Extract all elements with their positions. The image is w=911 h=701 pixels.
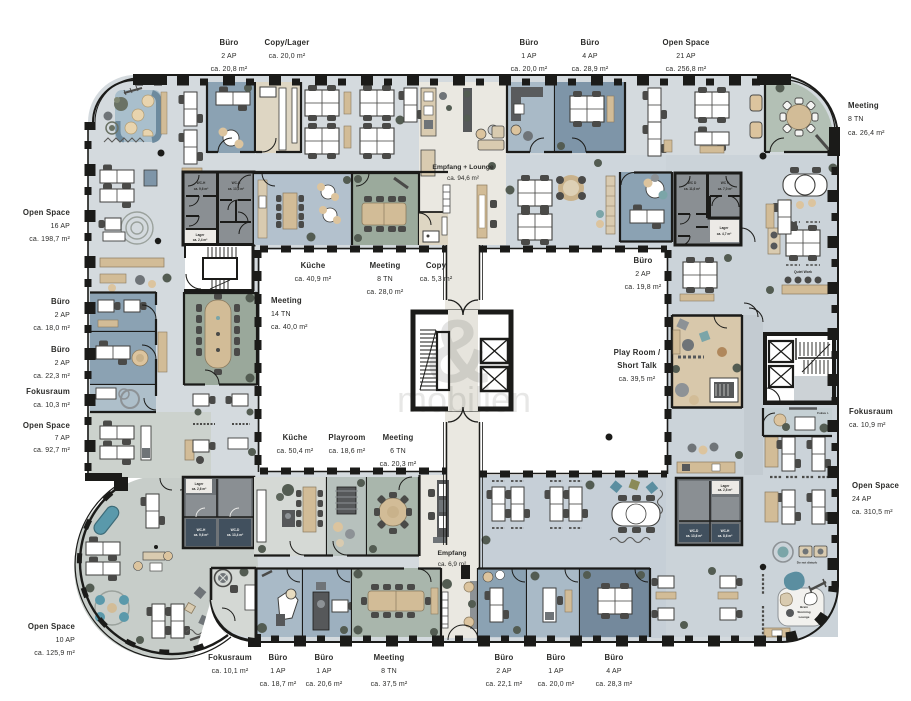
- svg-text:ca. 20,0 m²: ca. 20,0 m²: [269, 53, 306, 60]
- svg-text:24 AP: 24 AP: [852, 496, 872, 503]
- svg-text:Meeting: Meeting: [271, 296, 302, 305]
- svg-text:10 AP: 10 AP: [56, 637, 76, 644]
- svg-text:Empfang + Lounge: Empfang + Lounge: [432, 164, 494, 171]
- svg-text:6 TN: 6 TN: [390, 448, 406, 455]
- svg-text:Büro: Büro: [605, 653, 624, 662]
- svg-text:1 AP: 1 AP: [548, 668, 564, 675]
- svg-text:Short Talk: Short Talk: [617, 361, 657, 370]
- svg-text:ca. 198,7 m²: ca. 198,7 m²: [29, 236, 70, 243]
- svg-text:Lager: Lager: [720, 226, 729, 230]
- svg-text:Meeting: Meeting: [383, 433, 414, 442]
- svg-text:1 AP: 1 AP: [316, 668, 332, 675]
- svg-text:2 AP: 2 AP: [635, 271, 651, 278]
- svg-text:Open Space: Open Space: [28, 622, 76, 631]
- svg-text:Fokusraum: Fokusraum: [26, 387, 70, 396]
- svg-text:Büro: Büro: [495, 653, 514, 662]
- svg-text:Copy/Lager: Copy/Lager: [265, 38, 310, 47]
- svg-text:ca. 40,9 m²: ca. 40,9 m²: [295, 276, 332, 283]
- svg-text:ca. 9,6 m²: ca. 9,6 m²: [194, 533, 209, 537]
- svg-text:WC H: WC H: [721, 181, 730, 185]
- svg-text:Lager: Lager: [195, 482, 204, 486]
- svg-text:7 AP: 7 AP: [55, 435, 71, 442]
- svg-text:ca. 22,3 m²: ca. 22,3 m²: [33, 373, 70, 380]
- svg-text:ca. 8,6 m²: ca. 8,6 m²: [718, 534, 733, 538]
- svg-text:Büro: Büro: [547, 653, 566, 662]
- svg-text:8 TN: 8 TN: [848, 116, 864, 123]
- svg-text:Büro: Büro: [520, 38, 539, 47]
- svg-text:WC-D: WC-D: [231, 528, 240, 532]
- svg-text:16 AP: 16 AP: [51, 223, 71, 230]
- svg-text:Open Space: Open Space: [852, 481, 900, 490]
- svg-text:ca. 310,5 m²: ca. 310,5 m²: [852, 509, 893, 516]
- svg-text:ca. 5,3 m²: ca. 5,3 m²: [420, 276, 453, 283]
- svg-text:14 TN: 14 TN: [271, 311, 291, 318]
- svg-text:ca. 7,0 m²: ca. 7,0 m²: [718, 187, 733, 191]
- svg-text:1 AP: 1 AP: [270, 668, 286, 675]
- svg-text:Lounge: Lounge: [799, 615, 810, 619]
- svg-text:WC-H: WC-H: [232, 181, 241, 185]
- svg-text:8 TN: 8 TN: [377, 276, 393, 283]
- svg-text:ca. 13,6 m²: ca. 13,6 m²: [686, 534, 702, 538]
- svg-text:Büro: Büro: [634, 256, 653, 265]
- svg-text:Storming: Storming: [797, 610, 810, 614]
- svg-text:Brain: Brain: [800, 605, 808, 609]
- svg-text:Küche: Küche: [283, 433, 308, 442]
- svg-text:ca. 10,9 m²: ca. 10,9 m²: [849, 422, 886, 429]
- svg-text:WC-H: WC-H: [721, 529, 730, 533]
- svg-text:WC D: WC D: [688, 181, 697, 185]
- svg-text:WC-D: WC-D: [690, 529, 699, 533]
- svg-text:Open Space: Open Space: [23, 208, 71, 217]
- svg-text:Play Room /: Play Room /: [614, 348, 661, 357]
- svg-text:Fokusraum: Fokusraum: [208, 653, 252, 662]
- svg-text:Open Space: Open Space: [662, 38, 710, 47]
- svg-text:ca. 13,6 m²: ca. 13,6 m²: [228, 187, 244, 191]
- svg-text:Lager: Lager: [196, 233, 205, 237]
- svg-text:2 AP: 2 AP: [55, 312, 71, 319]
- svg-text:1 AP: 1 AP: [521, 53, 537, 60]
- svg-text:ca. 26,4 m²: ca. 26,4 m²: [848, 130, 885, 137]
- svg-text:ca. 94,6 m²: ca. 94,6 m²: [447, 175, 479, 182]
- svg-text:ca. 2,4 m²: ca. 2,4 m²: [193, 238, 208, 242]
- svg-text:Fokus r.: Fokus r.: [817, 411, 829, 415]
- svg-text:ca. 50,4 m²: ca. 50,4 m²: [277, 448, 314, 455]
- svg-text:ca. 18,6 m²: ca. 18,6 m²: [329, 448, 366, 455]
- svg-text:ca. 18,7 m²: ca. 18,7 m²: [260, 681, 297, 688]
- svg-text:8 TN: 8 TN: [381, 668, 397, 675]
- svg-text:Copy: Copy: [426, 261, 447, 270]
- svg-text:ca. 10,3 m²: ca. 10,3 m²: [33, 402, 70, 409]
- svg-text:Playroom: Playroom: [328, 433, 365, 442]
- svg-text:2 AP: 2 AP: [221, 53, 237, 60]
- svg-text:Quiet Work: Quiet Work: [794, 270, 812, 274]
- svg-text:Büro: Büro: [220, 38, 239, 47]
- svg-text:ca. 6,9 m²: ca. 6,9 m²: [438, 561, 466, 568]
- svg-text:Büro: Büro: [51, 297, 70, 306]
- svg-text:ca. 2,6 m²: ca. 2,6 m²: [718, 488, 733, 492]
- svg-text:21 AP: 21 AP: [676, 53, 696, 60]
- svg-text:ca. 4,7 m²: ca. 4,7 m²: [717, 232, 732, 236]
- svg-text:Meeting: Meeting: [374, 653, 405, 662]
- svg-text:ca. 125,9 m²: ca. 125,9 m²: [34, 650, 75, 657]
- svg-text:ca. 256,8 m²: ca. 256,8 m²: [666, 66, 707, 73]
- svg-text:ca. 9,6 m²: ca. 9,6 m²: [194, 187, 209, 191]
- svg-text:ca. 13,4 m²: ca. 13,4 m²: [227, 533, 243, 537]
- svg-text:ca. 92,7 m²: ca. 92,7 m²: [33, 447, 70, 454]
- svg-text:Open Space: Open Space: [23, 421, 71, 430]
- svg-text:ca. 20,0 m²: ca. 20,0 m²: [511, 66, 548, 73]
- svg-text:Büro: Büro: [581, 38, 600, 47]
- svg-text:ca. 19,8 m²: ca. 19,8 m²: [625, 284, 662, 291]
- svg-text:4 AP: 4 AP: [606, 668, 622, 675]
- svg-text:Fokusraum: Fokusraum: [849, 407, 893, 416]
- svg-text:WC-H: WC-H: [197, 181, 206, 185]
- svg-text:Büro: Büro: [51, 345, 70, 354]
- svg-text:Empfang: Empfang: [437, 550, 466, 557]
- svg-text:2 AP: 2 AP: [496, 668, 512, 675]
- svg-text:ca. 28,3 m²: ca. 28,3 m²: [596, 681, 633, 688]
- svg-text:ca. 20,6 m²: ca. 20,6 m²: [306, 681, 343, 688]
- svg-text:mobilien: mobilien: [397, 379, 531, 420]
- svg-text:ca. 20,0 m²: ca. 20,0 m²: [538, 681, 575, 688]
- svg-text:Büro: Büro: [315, 653, 334, 662]
- svg-text:WC-H: WC-H: [197, 528, 206, 532]
- svg-text:Büro: Büro: [269, 653, 288, 662]
- svg-text:Do not disturb: Do not disturb: [797, 561, 818, 565]
- svg-text:ca. 11,6 m²: ca. 11,6 m²: [684, 187, 700, 191]
- svg-text:ca. 37,5 m²: ca. 37,5 m²: [371, 681, 408, 688]
- svg-text:Küche: Küche: [301, 261, 326, 270]
- svg-text:ca. 28,0 m²: ca. 28,0 m²: [367, 289, 404, 296]
- svg-text:ca. 22,1 m²: ca. 22,1 m²: [486, 681, 523, 688]
- svg-text:Meeting: Meeting: [370, 261, 401, 270]
- svg-text:ca. 10,1 m²: ca. 10,1 m²: [212, 668, 249, 675]
- svg-text:ca. 2,6 m²: ca. 2,6 m²: [192, 487, 207, 491]
- svg-text:4 AP: 4 AP: [582, 53, 598, 60]
- svg-text:ca. 40,0 m²: ca. 40,0 m²: [271, 324, 308, 331]
- svg-text:ca. 20,8 m²: ca. 20,8 m²: [211, 66, 248, 73]
- svg-text:ca. 28,9 m²: ca. 28,9 m²: [572, 66, 609, 73]
- svg-text:ca. 20,3 m²: ca. 20,3 m²: [380, 461, 417, 468]
- svg-text:Meeting: Meeting: [848, 101, 879, 110]
- svg-text:ca. 18,0 m²: ca. 18,0 m²: [33, 325, 70, 332]
- svg-text:2 AP: 2 AP: [55, 360, 71, 367]
- svg-text:ca. 39,5 m²: ca. 39,5 m²: [619, 376, 656, 383]
